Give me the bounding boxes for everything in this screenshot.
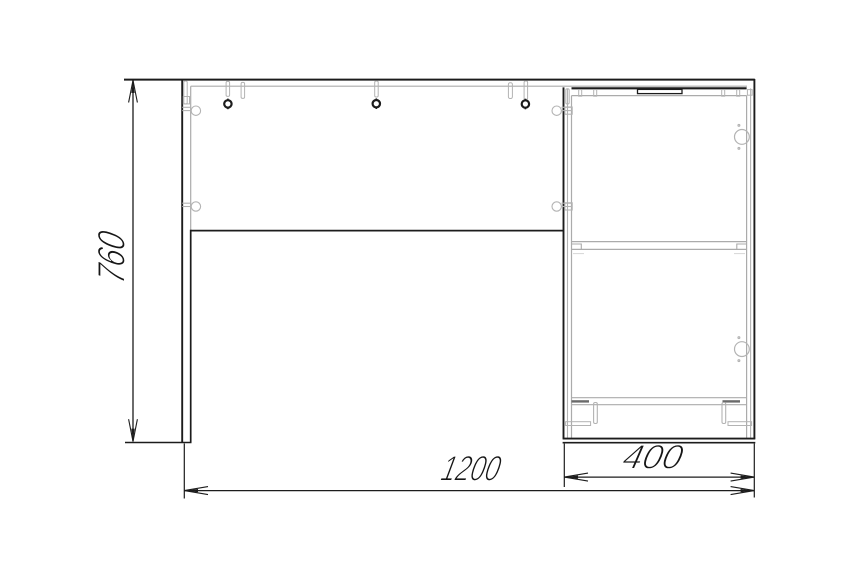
svg-text:1200: 1200 [438,448,505,488]
svg-text:400: 400 [619,439,687,477]
svg-text:760: 760 [91,227,133,287]
